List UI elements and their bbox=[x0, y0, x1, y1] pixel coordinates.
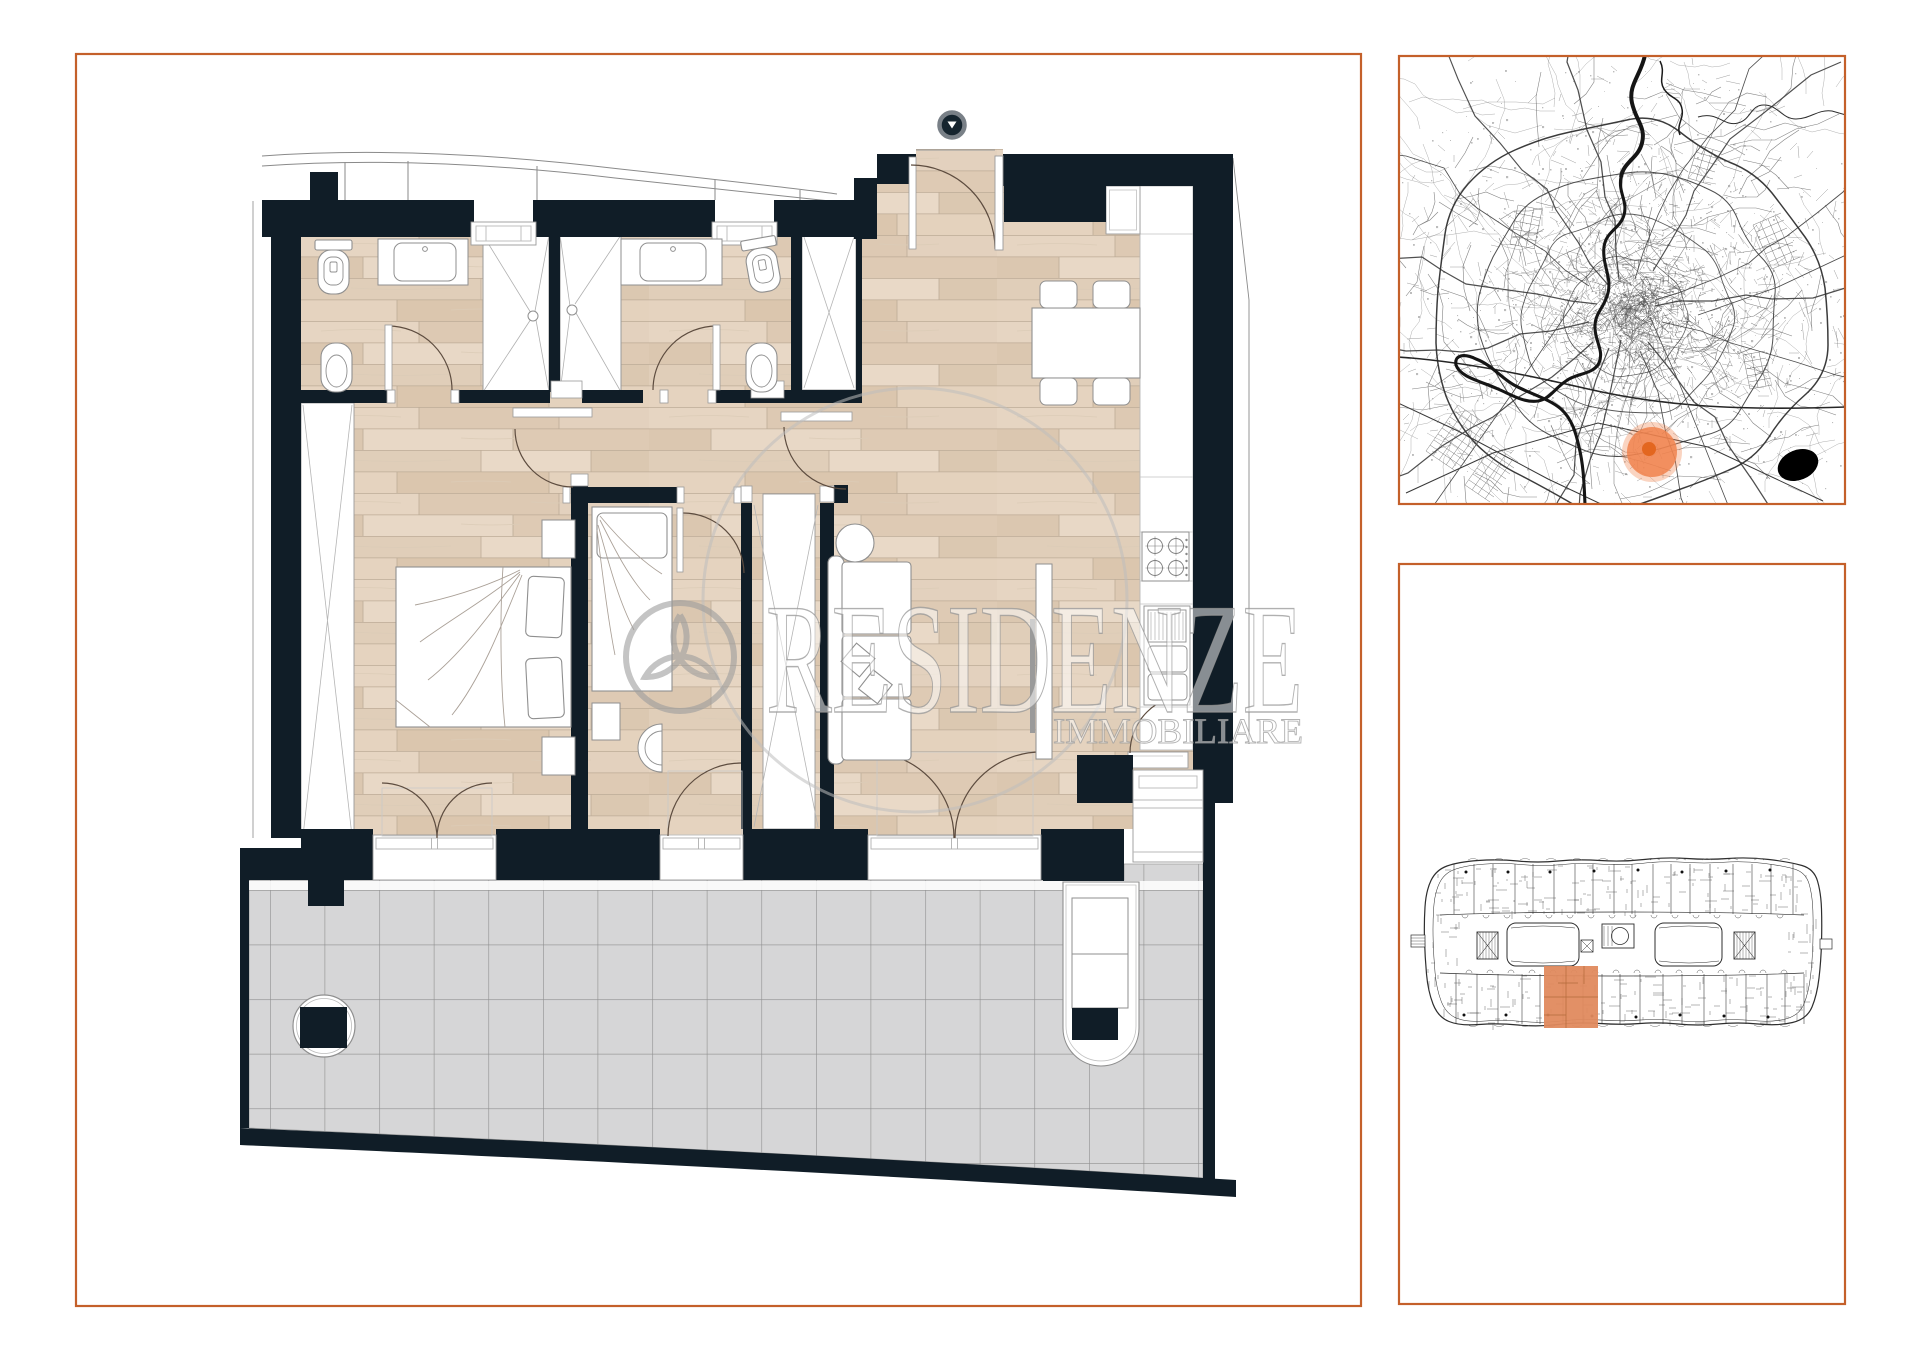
svg-text:IMMOBILIARE: IMMOBILIARE bbox=[1053, 711, 1303, 751]
